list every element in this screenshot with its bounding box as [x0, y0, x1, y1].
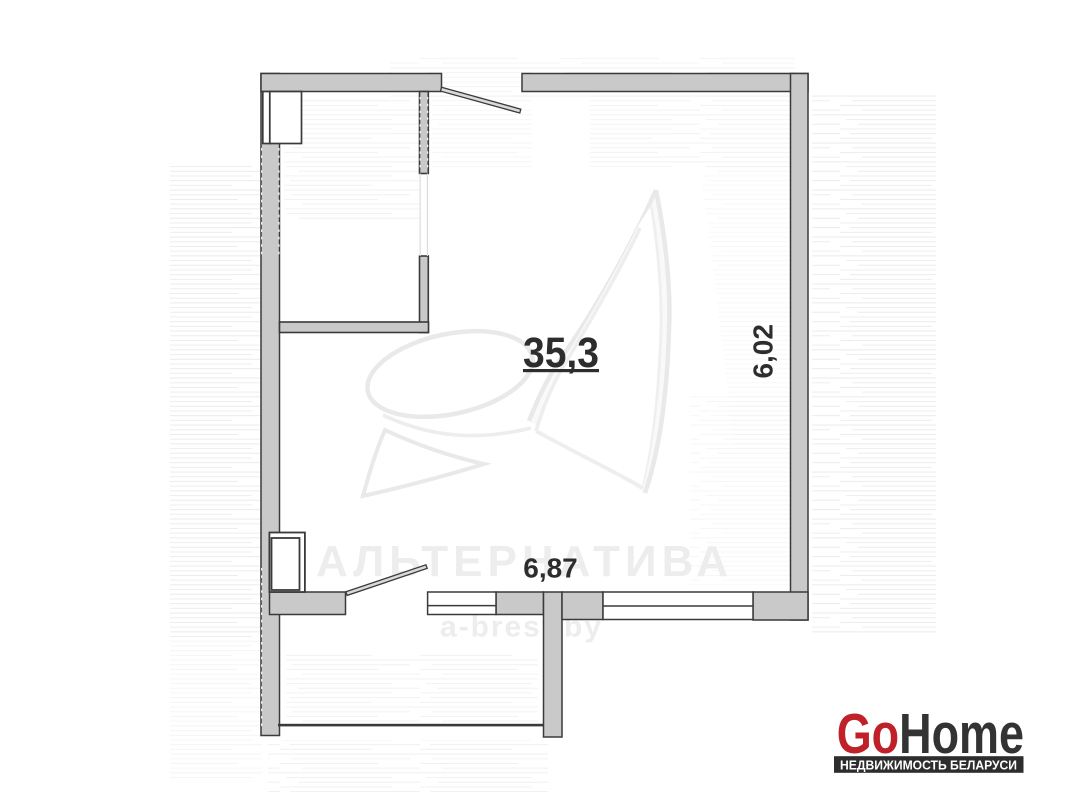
- svg-text:6,02: 6,02: [748, 324, 779, 379]
- svg-text:НЕДВИЖИМОСТЬ БЕЛАРУСИ: НЕДВИЖИМОСТЬ БЕЛАРУСИ: [840, 758, 1017, 773]
- svg-text:6,87: 6,87: [523, 552, 578, 583]
- svg-text:АЛЬТЕРНАТИВА: АЛЬТЕРНАТИВА: [316, 537, 728, 586]
